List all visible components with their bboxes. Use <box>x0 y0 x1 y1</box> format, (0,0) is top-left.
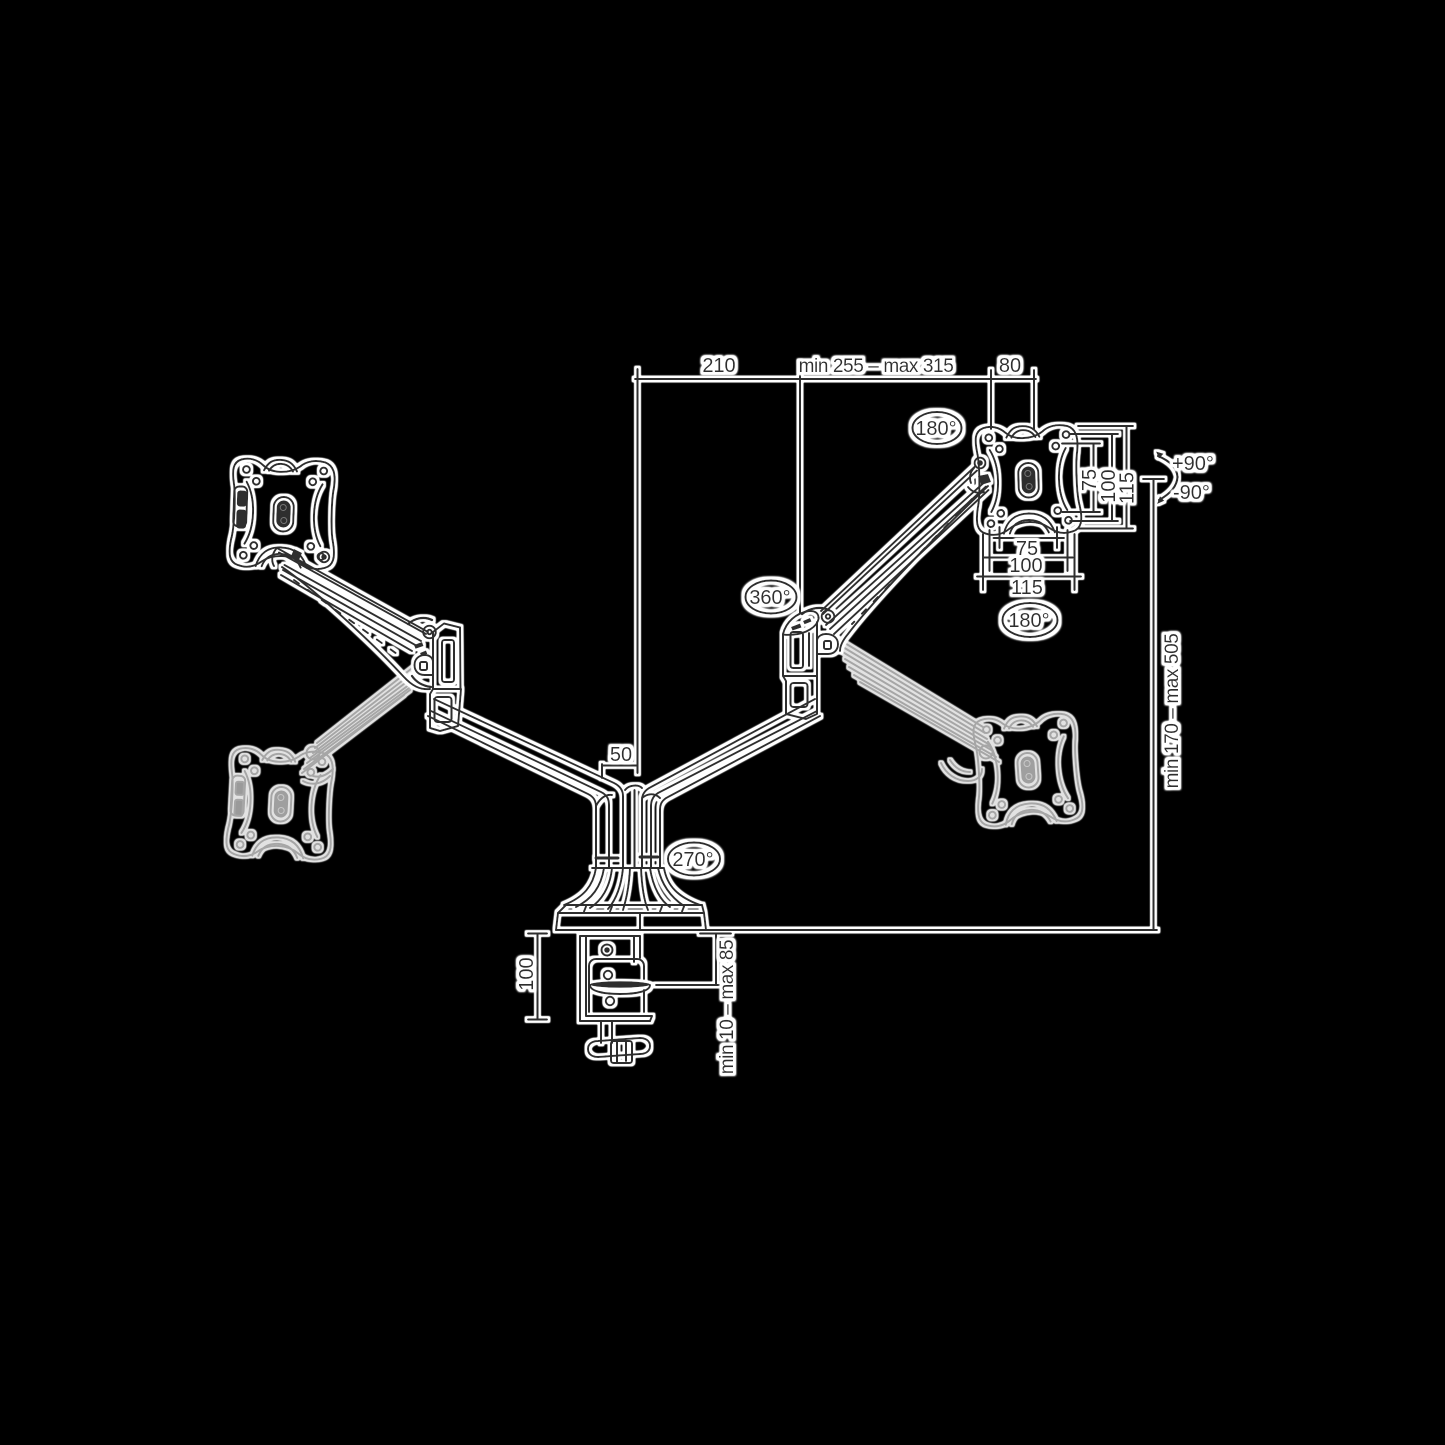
svg-text:360°: 360° <box>749 587 790 609</box>
svg-text:115: 115 <box>1117 472 1139 504</box>
svg-text:min 255 – max 315: min 255 – max 315 <box>799 356 954 377</box>
svg-text:+90°: +90° <box>1172 453 1214 475</box>
svg-text:270°: 270° <box>672 849 713 871</box>
svg-text:115: 115 <box>1011 577 1043 599</box>
svg-text:min 10 – max 85: min 10 – max 85 <box>717 940 738 1074</box>
svg-text:80: 80 <box>999 355 1021 377</box>
svg-text:-90°: -90° <box>1173 482 1210 504</box>
svg-text:100: 100 <box>516 957 538 990</box>
svg-text:180°: 180° <box>1008 610 1049 632</box>
svg-text:50: 50 <box>610 744 632 766</box>
svg-text:100: 100 <box>1009 555 1042 577</box>
svg-text:210: 210 <box>702 355 735 377</box>
svg-text:180°: 180° <box>915 418 956 440</box>
svg-text:min 170 – max 505: min 170 – max 505 <box>1162 634 1183 789</box>
